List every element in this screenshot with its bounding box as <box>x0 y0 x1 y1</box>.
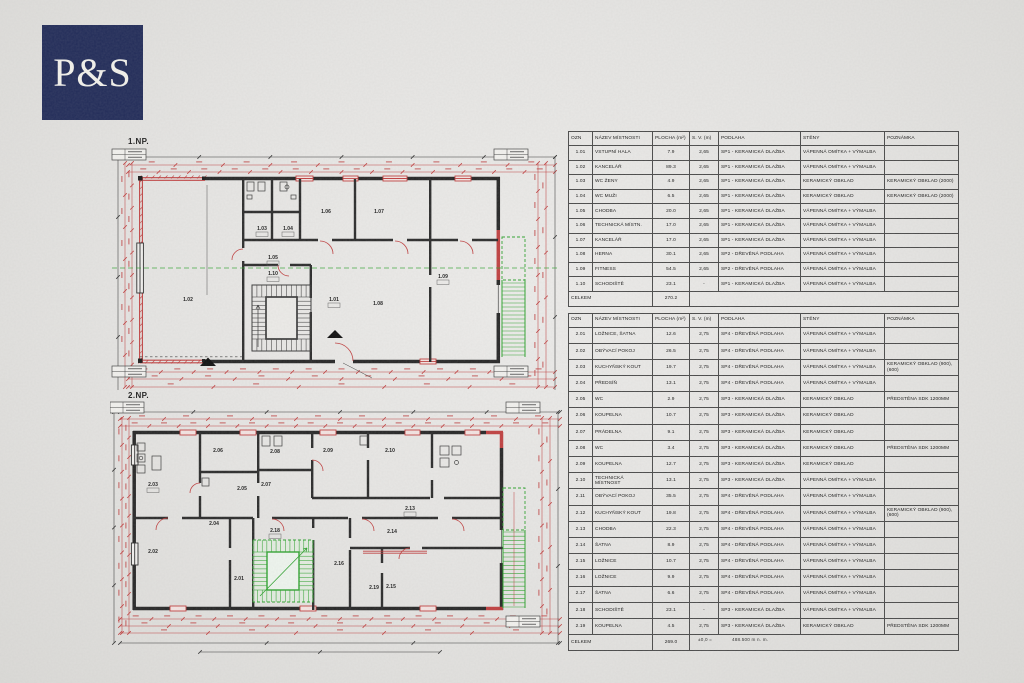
table-cell: KOUPELNA <box>593 408 653 424</box>
table-cell: SCHODIŠTĚ <box>593 602 653 618</box>
table-cell: 26.5 <box>653 343 690 359</box>
table-cell: LOŽNICE <box>593 554 653 570</box>
table-cell: VÁPENNÁ OMÍTKA + VÝMALBA <box>801 233 885 248</box>
table-cell: 10.7 <box>653 554 690 570</box>
table-row: 2.01LOŽNICE, ŠATNA12.62,75SP4 - DŘEVĚNÁ … <box>569 327 959 343</box>
table-cell <box>885 160 959 175</box>
table-cell: SP4 - DŘEVĚNÁ PODLAHA <box>719 521 801 537</box>
table-cell: 8.9 <box>653 537 690 553</box>
table-cell: KOUPELNA <box>593 618 653 634</box>
table-cell: 9.9 <box>653 570 690 586</box>
header-cell: STĚNY <box>801 313 885 327</box>
table-cell: SP1 - KERAMICKÁ DLAŽBA <box>719 233 801 248</box>
table-row: 2.07PRÁDELNA9.12,75SP3 - KERAMICKÁ DLAŽB… <box>569 424 959 440</box>
table-cell: LOŽNICE, ŠATNA <box>593 327 653 343</box>
table-cell: KERAMICKÝ OBKLAD <box>801 440 885 456</box>
table-cell: 6.6 <box>653 586 690 602</box>
table-total-row: CELKEM270.2 <box>569 291 959 306</box>
table-cell: 2,75 <box>690 440 719 456</box>
table-cell: 6.5 <box>653 189 690 204</box>
table-row: 1.08HERNA30.12,65SP2 - DŘEVĚNÁ PODLAHAVÁ… <box>569 248 959 263</box>
table-cell: KERAMICKÝ OBKLAD <box>801 408 885 424</box>
table-cell: 2,75 <box>690 376 719 392</box>
header-cell: STĚNY <box>801 132 885 146</box>
table-cell: VÁPENNÁ OMÍTKA + VÝMALBA <box>801 489 885 505</box>
interior-walls-2np <box>133 432 503 610</box>
table-cell: KUCHYŇSKÝ KOUT <box>593 359 653 375</box>
table-row: 2.05WC2.92,75SP3 - KERAMICKÁ DLAŽBAKERAM… <box>569 392 959 408</box>
table-header-row: OZNNÁZEV MÍSTNOSTIPLOCHA (m²)S. V. (m)PO… <box>569 313 959 327</box>
table-cell: 13.1 <box>653 376 690 392</box>
table-cell: 2,65 <box>690 204 719 219</box>
table-cell: 2,65 <box>690 175 719 190</box>
table-cell: VÁPENNÁ OMÍTKA + VÝMALBA <box>801 473 885 489</box>
table-cell: 2.12 <box>569 505 593 521</box>
table-row: 2.04PŘEDSÍŇ13.12,75SP4 - DŘEVĚNÁ PODLAHA… <box>569 376 959 392</box>
table-cell: KERAMICKÝ OBKLAD (2000) <box>885 189 959 204</box>
table-cell: SP3 - KERAMICKÁ DLAŽBA <box>719 457 801 473</box>
table-cell: 35.5 <box>653 489 690 505</box>
logo-text: P&S <box>53 49 132 96</box>
table-cell: 1.05 <box>569 204 593 219</box>
table-row: 2.18SCHODIŠTĚ23.1-SP3 - KERAMICKÁ DLAŽBA… <box>569 602 959 618</box>
room-label: 1.04 <box>283 226 293 232</box>
staircase-2np <box>253 540 313 602</box>
table-cell: 2,65 <box>690 146 719 161</box>
table-cell: 1.08 <box>569 248 593 263</box>
table-cell: 2,75 <box>690 618 719 634</box>
exterior-walls-1np <box>205 177 500 363</box>
table-cell: VÁPENNÁ OMÍTKA + VÝMALBA <box>801 521 885 537</box>
table-cell: OBÝVACÍ POKOJ <box>593 343 653 359</box>
header-cell: NÁZEV MÍSTNOSTI <box>593 313 653 327</box>
header-cell: NÁZEV MÍSTNOSTI <box>593 132 653 146</box>
table-cell: WC ŽENY <box>593 175 653 190</box>
table-cell: PRÁDELNA <box>593 424 653 440</box>
table-cell: 9.1 <box>653 424 690 440</box>
table-cell: SP1 - KERAMICKÁ DLAŽBA <box>719 204 801 219</box>
table-cell: VÁPENNÁ OMÍTKA + VÝMALBA <box>801 277 885 292</box>
header-cell: PODLAHA <box>719 132 801 146</box>
total-label: CELKEM <box>569 635 653 651</box>
table-cell <box>885 343 959 359</box>
table-cell: PŘEDSTĚNA SDK 1200MM <box>885 618 959 634</box>
table-row: 1.07KANCELÁŘ17.02,65SP1 - KERAMICKÁ DLAŽ… <box>569 233 959 248</box>
table-cell: ŠATNA <box>593 586 653 602</box>
table-cell: 89.3 <box>653 160 690 175</box>
table-cell <box>885 521 959 537</box>
table-row: 1.02KANCELÁŘ89.32,65SP1 - KERAMICKÁ DLAŽ… <box>569 160 959 175</box>
total-value: 269.0 <box>653 635 690 651</box>
table-cell: 2,75 <box>690 505 719 521</box>
table-cell: - <box>690 602 719 618</box>
table-cell: 3.4 <box>653 440 690 456</box>
table-cell: 2.04 <box>569 376 593 392</box>
table-cell: WC <box>593 440 653 456</box>
table-cell: SP4 - DŘEVĚNÁ PODLAHA <box>719 537 801 553</box>
table-cell: SP1 - KERAMICKÁ DLAŽBA <box>719 160 801 175</box>
table-cell: VÁPENNÁ OMÍTKA + VÝMALBA <box>801 537 885 553</box>
table-row: 2.10TECHNICKÁ MÍSTNOST13.12,75SP3 - KERA… <box>569 473 959 489</box>
table-cell: VÁPENNÁ OMÍTKA + VÝMALBA <box>801 602 885 618</box>
header-cell: S. V. (m) <box>690 313 719 327</box>
table-cell: 2.19 <box>569 618 593 634</box>
table-cell: KANCELÁŘ <box>593 233 653 248</box>
staircase-1np <box>252 285 311 351</box>
table-row: 2.09KOUPELNA12.72,75SP3 - KERAMICKÁ DLAŽ… <box>569 457 959 473</box>
table-cell: VÁPENNÁ OMÍTKA + VÝMALBA <box>801 343 885 359</box>
table-cell: VÁPENNÁ OMÍTKA + VÝMALBA <box>801 327 885 343</box>
table-header-row: OZNNÁZEV MÍSTNOSTIPLOCHA (m²)S. V. (m)PO… <box>569 132 959 146</box>
table-cell: 2.03 <box>569 359 593 375</box>
room-label: 2.06 <box>213 448 223 454</box>
datum-value: 488.500 m n. m. <box>732 637 768 642</box>
table-cell: 2.09 <box>569 457 593 473</box>
table-row: 2.19KOUPELNA4.52,75SP3 - KERAMICKÁ DLAŽB… <box>569 618 959 634</box>
table-cell <box>885 457 959 473</box>
table-cell: KANCELÁŘ <box>593 160 653 175</box>
table-cell: ŠATNA <box>593 537 653 553</box>
table-cell: 2,75 <box>690 586 719 602</box>
table-row: 1.10SCHODIŠTĚ23.1-SP1 - KERAMICKÁ DLAŽBA… <box>569 277 959 292</box>
room-label: 2.16 <box>334 561 344 567</box>
table-cell: VÁPENNÁ OMÍTKA + VÝMALBA <box>801 505 885 521</box>
balcony-rail-2np <box>363 551 427 553</box>
room-label: 1.10 <box>268 271 278 277</box>
table-cell <box>885 248 959 263</box>
table-cell: 2.11 <box>569 489 593 505</box>
table-cell: KERAMICKÝ OBKLAD <box>801 618 885 634</box>
total-label: CELKEM <box>569 291 653 306</box>
table-cell <box>885 554 959 570</box>
table-cell: 19.7 <box>653 359 690 375</box>
table-cell: PŘEDSTĚNA SDK 1200MM <box>885 392 959 408</box>
table-cell: VÁPENNÁ OMÍTKA + VÝMALBA <box>801 570 885 586</box>
table-cell: 2,75 <box>690 408 719 424</box>
table-cell: PŘEDSÍŇ <box>593 376 653 392</box>
table-cell <box>885 218 959 233</box>
room-label: 2.05 <box>237 486 247 492</box>
room-label: 2.15 <box>386 584 396 590</box>
table-row: 2.15LOŽNICE10.72,75SP4 - DŘEVĚNÁ PODLAHA… <box>569 554 959 570</box>
table-cell: 2,65 <box>690 262 719 277</box>
header-cell: OZN <box>569 132 593 146</box>
table-cell: 2.16 <box>569 570 593 586</box>
table-cell: SP4 - DŘEVĚNÁ PODLAHA <box>719 489 801 505</box>
table-cell: KERAMICKÝ OBKLAD (900),(600) <box>885 505 959 521</box>
table-cell: WC MUŽI <box>593 189 653 204</box>
room-labels-1np: 1.011.021.031.041.051.061.071.081.091.10 <box>183 209 449 308</box>
table-cell: SP4 - DŘEVĚNÁ PODLAHA <box>719 554 801 570</box>
total-empty-cell <box>690 291 959 306</box>
room-label: 1.08 <box>373 301 383 307</box>
table-cell: 2.08 <box>569 440 593 456</box>
table-row: 1.09FITNESS54.52,65SP2 - DŘEVĚNÁ PODLAHA… <box>569 262 959 277</box>
table-row: 2.03KUCHYŇSKÝ KOUT19.72,75SP4 - DŘEVĚNÁ … <box>569 359 959 375</box>
table-cell <box>885 586 959 602</box>
table-row: 2.17ŠATNA6.62,75SP4 - DŘEVĚNÁ PODLAHAVÁP… <box>569 586 959 602</box>
room-label: 1.02 <box>183 297 193 303</box>
table-cell: SP1 - KERAMICKÁ DLAŽBA <box>719 189 801 204</box>
table-cell: SP4 - DŘEVĚNÁ PODLAHA <box>719 327 801 343</box>
table-cell: 1.01 <box>569 146 593 161</box>
table-cell: 2,65 <box>690 233 719 248</box>
table-cell: 2.10 <box>569 473 593 489</box>
table-cell: 2.17 <box>569 586 593 602</box>
table-cell: KERAMICKÝ OBKLAD <box>801 392 885 408</box>
table-cell: SCHODIŠTĚ <box>593 277 653 292</box>
table-cell: 2.01 <box>569 327 593 343</box>
room-label: 1.07 <box>374 209 384 215</box>
table-cell: 2,75 <box>690 327 719 343</box>
room-label: 1.09 <box>438 274 448 280</box>
table-cell <box>885 204 959 219</box>
table-cell: SP1 - KERAMICKÁ DLAŽBA <box>719 218 801 233</box>
table-cell: - <box>690 277 719 292</box>
table-cell: 2.05 <box>569 392 593 408</box>
table-cell: KUCHYŇSKÝ KOUT <box>593 505 653 521</box>
table-row: 2.06KOUPELNA10.72,75SP3 - KERAMICKÁ DLAŽ… <box>569 408 959 424</box>
table-cell: CHODBA <box>593 204 653 219</box>
header-cell: PLOCHA (m²) <box>653 132 690 146</box>
room-label: 2.08 <box>270 449 280 455</box>
table-cell: KOUPELNA <box>593 457 653 473</box>
table-cell: SP1 - KERAMICKÁ DLAŽBA <box>719 277 801 292</box>
table-cell <box>885 146 959 161</box>
table-cell: 1.07 <box>569 233 593 248</box>
table-cell: OBÝVACÍ POKOJ <box>593 489 653 505</box>
room-label: 2.14 <box>387 529 397 535</box>
table-row: 1.06TECHNICKÁ MÍSTN.17.02,65SP1 - KERAMI… <box>569 218 959 233</box>
fixtures-2np <box>137 436 461 486</box>
table-cell: VÁPENNÁ OMÍTKA + VÝMALBA <box>801 359 885 375</box>
table-cell <box>885 262 959 277</box>
table-cell: 2,75 <box>690 457 719 473</box>
room-label: 2.04 <box>209 521 219 527</box>
table-cell <box>885 424 959 440</box>
table-cell: SP1 - KERAMICKÁ DLAŽBA <box>719 175 801 190</box>
table-cell: SP3 - KERAMICKÁ DLAŽBA <box>719 618 801 634</box>
table-cell: SP4 - DŘEVĚNÁ PODLAHA <box>719 376 801 392</box>
room-label: 1.05 <box>268 255 278 261</box>
table-cell: 2,65 <box>690 218 719 233</box>
table-cell: KERAMICKÝ OBKLAD <box>801 457 885 473</box>
windows-1np <box>296 176 471 364</box>
header-cell: OZN <box>569 313 593 327</box>
table-cell: SP3 - KERAMICKÁ DLAŽBA <box>719 424 801 440</box>
table-cell: LOŽNICE <box>593 570 653 586</box>
table-cell: 2,75 <box>690 343 719 359</box>
table-cell: 23.1 <box>653 277 690 292</box>
table-cell: PŘEDSTĚNA SDK 1200MM <box>885 440 959 456</box>
table-cell: VÁPENNÁ OMÍTKA + VÝMALBA <box>801 146 885 161</box>
table-cell: 2,75 <box>690 554 719 570</box>
room-label: 1.03 <box>257 226 267 232</box>
table-cell: 2,75 <box>690 521 719 537</box>
table-cell: FITNESS <box>593 262 653 277</box>
header-cell: POZNÁMKA <box>885 313 959 327</box>
table-cell: TECHNICKÁ MÍSTNOST <box>593 473 653 489</box>
table-cell: 2.18 <box>569 602 593 618</box>
table-cell: 23.1 <box>653 602 690 618</box>
misc-lines-1np <box>140 185 372 378</box>
table-cell: SP4 - DŘEVĚNÁ PODLAHA <box>719 343 801 359</box>
table-cell: WC <box>593 392 653 408</box>
room-label: 2.02 <box>148 549 158 555</box>
table-cell: 2,75 <box>690 570 719 586</box>
table-cell: 2.9 <box>653 392 690 408</box>
table-cell: 2,65 <box>690 160 719 175</box>
floorplan-2np-drawing: 2.012.022.032.042.052.062.072.082.092.10… <box>110 388 570 663</box>
table-cell: SP1 - KERAMICKÁ DLAŽBA <box>719 146 801 161</box>
table-cell: HERNA <box>593 248 653 263</box>
table-row: 2.13CHODBA22.32,75SP4 - DŘEVĚNÁ PODLAHAV… <box>569 521 959 537</box>
table-cell: 2,75 <box>690 489 719 505</box>
total-empty-cell <box>690 635 959 651</box>
table-cell: VSTUPNÍ HALA <box>593 146 653 161</box>
table-cell: KERAMICKÝ OBKLAD (2000) <box>885 175 959 190</box>
table-row: 1.05CHODBA20.02,65SP1 - KERAMICKÁ DLAŽBA… <box>569 204 959 219</box>
red-walls-1np <box>139 176 499 364</box>
table-cell: 2.06 <box>569 408 593 424</box>
room-label: 2.03 <box>148 482 158 488</box>
table-row: 1.04WC MUŽI6.52,65SP1 - KERAMICKÁ DLAŽBA… <box>569 189 959 204</box>
table-cell: SP3 - KERAMICKÁ DLAŽBA <box>719 408 801 424</box>
table-cell: KERAMICKÝ OBKLAD (900),(600) <box>885 359 959 375</box>
total-value: 270.2 <box>653 291 690 306</box>
table-row: 2.08WC3.42,75SP3 - KERAMICKÁ DLAŽBAKERAM… <box>569 440 959 456</box>
elevation-tags-2np <box>110 402 540 627</box>
table-cell: 17.0 <box>653 233 690 248</box>
table-cell: SP2 - DŘEVĚNÁ PODLAHA <box>719 248 801 263</box>
room-label: 2.07 <box>261 482 271 488</box>
table-cell: 2,65 <box>690 248 719 263</box>
table-cell <box>885 602 959 618</box>
table-row: 2.12KUCHYŇSKÝ KOUT19.82,75SP4 - DŘEVĚNÁ … <box>569 505 959 521</box>
table-cell: SP2 - DŘEVĚNÁ PODLAHA <box>719 262 801 277</box>
table-cell <box>885 233 959 248</box>
table-cell: VÁPENNÁ OMÍTKA + VÝMALBA <box>801 262 885 277</box>
table-cell <box>885 473 959 489</box>
table-cell: SP4 - DŘEVĚNÁ PODLAHA <box>719 586 801 602</box>
table-row: 2.14ŠATNA8.92,75SP4 - DŘEVĚNÁ PODLAHAVÁP… <box>569 537 959 553</box>
header-cell: S. V. (m) <box>690 132 719 146</box>
room-table-1np: OZNNÁZEV MÍSTNOSTIPLOCHA (m²)S. V. (m)PO… <box>568 131 959 307</box>
table-row: 1.03WC ŽENY4.92,65SP1 - KERAMICKÁ DLAŽBA… <box>569 175 959 190</box>
table-cell: 2,75 <box>690 537 719 553</box>
table-cell: 12.7 <box>653 457 690 473</box>
table-row: 1.01VSTUPNÍ HALA7.92,65SP1 - KERAMICKÁ D… <box>569 146 959 161</box>
table-cell <box>885 327 959 343</box>
table-cell: SP3 - KERAMICKÁ DLAŽBA <box>719 440 801 456</box>
table-cell: KERAMICKÝ OBKLAD <box>801 175 885 190</box>
table-cell: SP3 - KERAMICKÁ DLAŽBA <box>719 602 801 618</box>
dimension-lines-2np <box>112 410 562 654</box>
table-cell: VÁPENNÁ OMÍTKA + VÝMALBA <box>801 160 885 175</box>
table-cell: 20.0 <box>653 204 690 219</box>
table-cell: VÁPENNÁ OMÍTKA + VÝMALBA <box>801 586 885 602</box>
table-cell: SP3 - KERAMICKÁ DLAŽBA <box>719 392 801 408</box>
table-cell: 1.06 <box>569 218 593 233</box>
table-cell: VÁPENNÁ OMÍTKA + VÝMALBA <box>801 248 885 263</box>
table-cell: 13.1 <box>653 473 690 489</box>
table-cell: 2.14 <box>569 537 593 553</box>
table-cell: 1.09 <box>569 262 593 277</box>
table-cell: 2.02 <box>569 343 593 359</box>
floorplan-1np-drawing: 1.011.021.031.041.051.061.071.081.091.10 <box>110 135 565 390</box>
room-schedule-tables: OZNNÁZEV MÍSTNOSTIPLOCHA (m²)S. V. (m)PO… <box>568 131 958 657</box>
table-cell: 2,75 <box>690 359 719 375</box>
table-cell: 1.10 <box>569 277 593 292</box>
dimension-lines-1np <box>116 155 557 390</box>
table-cell: TECHNICKÁ MÍSTN. <box>593 218 653 233</box>
table-cell: 12.6 <box>653 327 690 343</box>
table-cell <box>885 537 959 553</box>
table-cell: 54.5 <box>653 262 690 277</box>
table-cell: 2.07 <box>569 424 593 440</box>
table-cell: 1.04 <box>569 189 593 204</box>
table-row: 2.02OBÝVACÍ POKOJ26.52,75SP4 - DŘEVĚNÁ P… <box>569 343 959 359</box>
room-label: 1.01 <box>329 297 339 303</box>
room-label: 2.10 <box>385 448 395 454</box>
header-cell: PODLAHA <box>719 313 801 327</box>
table-cell: 30.1 <box>653 248 690 263</box>
table-cell: 22.3 <box>653 521 690 537</box>
room-label: 2.13 <box>405 506 415 512</box>
table-cell: 4.9 <box>653 175 690 190</box>
table-cell: 7.9 <box>653 146 690 161</box>
table-cell: 1.02 <box>569 160 593 175</box>
table-cell: VÁPENNÁ OMÍTKA + VÝMALBA <box>801 204 885 219</box>
table-cell <box>885 570 959 586</box>
table-cell: 2.13 <box>569 521 593 537</box>
table-cell: VÁPENNÁ OMÍTKA + VÝMALBA <box>801 218 885 233</box>
table-cell: CHODBA <box>593 521 653 537</box>
table-cell: 1.03 <box>569 175 593 190</box>
company-logo: P&S <box>42 25 143 120</box>
room-table-2np: OZNNÁZEV MÍSTNOSTIPLOCHA (m²)S. V. (m)PO… <box>568 313 959 652</box>
table-cell: 10.7 <box>653 408 690 424</box>
table-cell: 2,75 <box>690 424 719 440</box>
room-label: 1.06 <box>321 209 331 215</box>
table-cell: 2,65 <box>690 189 719 204</box>
table-cell: 19.8 <box>653 505 690 521</box>
table-cell: KERAMICKÝ OBKLAD <box>801 424 885 440</box>
table-cell: SP3 - KERAMICKÁ DLAŽBA <box>719 473 801 489</box>
room-label: 2.18 <box>270 528 280 534</box>
table-row: 2.11OBÝVACÍ POKOJ35.52,75SP4 - DŘEVĚNÁ P… <box>569 489 959 505</box>
table-cell: 2,75 <box>690 473 719 489</box>
table-cell: SP4 - DŘEVĚNÁ PODLAHA <box>719 505 801 521</box>
room-label: 2.19 <box>369 585 379 591</box>
corner-columns-1np <box>138 176 206 363</box>
table-cell <box>885 489 959 505</box>
header-cell: PLOCHA (m²) <box>653 313 690 327</box>
blueprint-sheet: { "logo": { "text": "P&S", "bg_color": "… <box>0 0 1024 683</box>
table-cell: 2.15 <box>569 554 593 570</box>
table-cell: 2,75 <box>690 392 719 408</box>
table-cell <box>885 376 959 392</box>
table-cell: 17.0 <box>653 218 690 233</box>
table-cell: KERAMICKÝ OBKLAD <box>801 189 885 204</box>
table-cell: 4.5 <box>653 618 690 634</box>
room-label: 2.01 <box>234 576 244 582</box>
table-cell <box>885 408 959 424</box>
header-cell: POZNÁMKA <box>885 132 959 146</box>
table-cell <box>885 277 959 292</box>
table-row: 2.16LOŽNICE9.92,75SP4 - DŘEVĚNÁ PODLAHAV… <box>569 570 959 586</box>
table-cell: VÁPENNÁ OMÍTKA + VÝMALBA <box>801 376 885 392</box>
